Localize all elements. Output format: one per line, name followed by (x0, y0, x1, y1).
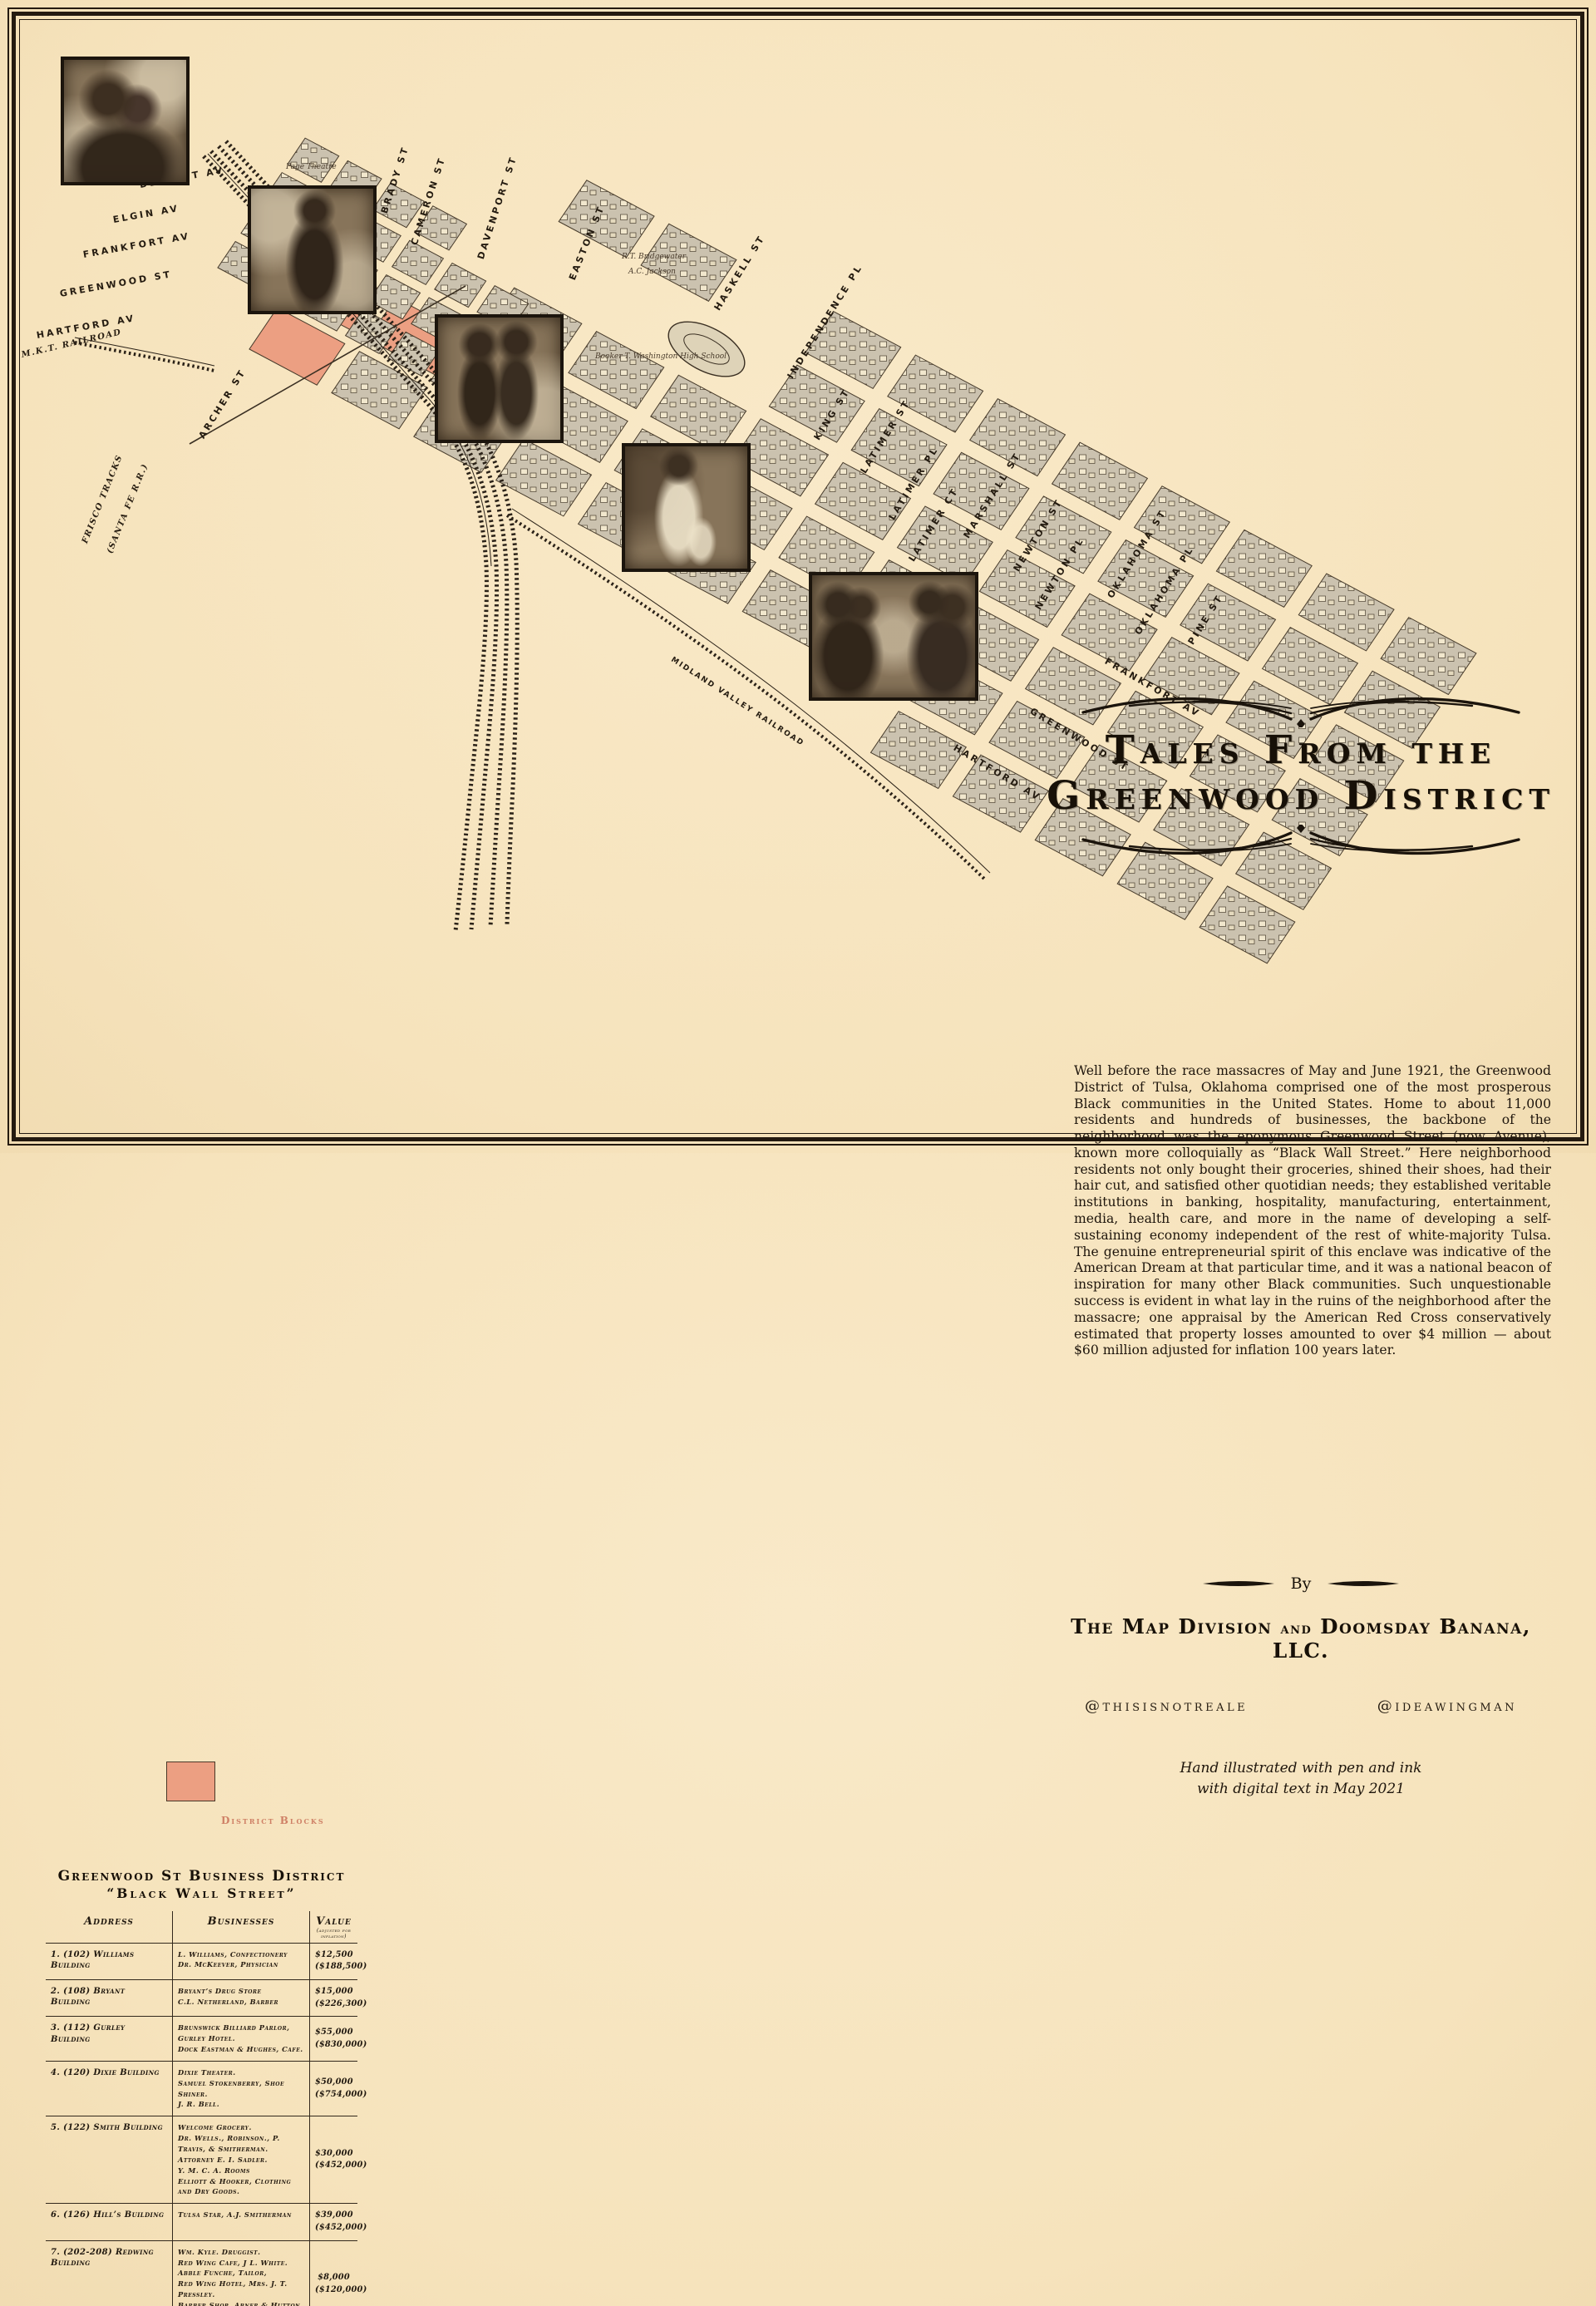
table-row-value: $55,000($830,000) (309, 2016, 357, 2061)
table1-title-line1: Greenwood St Business District (46, 1868, 357, 1885)
handle-thisisnotreale: @thisisnotreale (1085, 1697, 1248, 1715)
business-table-1: Greenwood St Business District “Black Wa… (46, 1868, 357, 2306)
table-row-address: 3. (112) Gurley Building (46, 2016, 172, 2061)
title-block: Tales From the Greenwood District (1039, 691, 1563, 861)
vintage-photo-5 (809, 572, 978, 701)
table-row-address: 7. (202-208) Redwing Building (46, 2240, 172, 2306)
byline-row: By (1039, 1574, 1563, 1593)
table-row-value: $15,000($226,300) (309, 1979, 357, 2016)
byline: The Map Division and Doomsday Banana, LL… (1039, 1614, 1563, 1663)
table-row-address: 2. (108) Bryant Building (46, 1979, 172, 2016)
park-oval (660, 311, 754, 388)
table-row-businesses: Dixie Theater.Samuel Stokenberry, Shoe S… (172, 2061, 309, 2116)
vintage-photo-1 (61, 57, 190, 185)
poster-title-line1: Tales From the (1039, 727, 1563, 773)
by-dash-right-icon (1326, 1579, 1401, 1588)
greenwood-district-map (0, 0, 1596, 1153)
table-row-value: $12,500($188,500) (309, 1943, 357, 1979)
table-row-value: $50,000($754,000) (309, 2061, 357, 2116)
table-row-businesses: Wm. Kyle. Druggist.Red Wing Cafe, J L. W… (172, 2240, 309, 2306)
table-row-businesses: L. Williams, ConfectioneryDr. McKeever, … (172, 1943, 309, 1979)
vintage-photo-2 (248, 185, 377, 314)
place-label-rt-bridgewater: R.T. Bridgewater (622, 253, 686, 261)
note-line2: with digital text in May 2021 (1039, 1779, 1563, 1800)
table-row-value: $30,000($452,000) (309, 2116, 357, 2203)
by-dash-left-icon (1201, 1579, 1276, 1588)
social-handles: @thisisnotreale @ideawingman (1085, 1697, 1517, 1715)
table1-header-address: Address (46, 1911, 172, 1943)
table-row-businesses: Bryant’s Drug StoreC.L. Netherland, Barb… (172, 1979, 309, 2016)
table-row-address: 4. (120) Dixie Building (46, 2061, 172, 2116)
table-row-businesses: Brunswick Billiard Parlor,Gurley Hotel.D… (172, 2016, 309, 2061)
note-line1: Hand illustrated with pen and ink (1039, 1758, 1563, 1779)
table-row-address: 5. (122) Smith Building (46, 2116, 172, 2203)
district-blocks-label: District Blocks (221, 1815, 1596, 1826)
table-row-value: $8,000($120,000) (309, 2240, 357, 2306)
by-label: By (1291, 1574, 1312, 1593)
intro-paragraph: Well before the race massacres of May an… (1074, 1063, 1551, 1359)
table1-title-line2: “Black Wall Street” (46, 1885, 357, 1901)
table-row-businesses: Tulsa Star, A.J. Smitherman (172, 2203, 309, 2239)
byline-and: and (1280, 1620, 1312, 1638)
vintage-photo-4 (622, 443, 751, 572)
table1-header-value-label: Value (316, 1915, 352, 1928)
poster-title-line2: Greenwood District (1039, 773, 1563, 819)
table-row-businesses: Welcome Grocery.Dr. Wells., Robinson., P… (172, 2116, 309, 2203)
place-label-booker-t-washington-high-school: Booker T. Washington High School (595, 352, 727, 361)
flourish-bottom-icon (1068, 825, 1534, 861)
table1-header-businesses: Businesses (172, 1911, 309, 1943)
table-row-value: $39,000($452,000) (309, 2203, 357, 2239)
district-blocks-swatch (166, 1762, 215, 1801)
illustration-note: Hand illustrated with pen and ink with d… (1039, 1758, 1563, 1799)
table1-header-value: Value (adjusted for inflation) (309, 1911, 357, 1943)
vintage-photo-3 (435, 314, 564, 443)
table1-header-value-note: (adjusted for inflation) (312, 1928, 356, 1939)
place-label-page-theatre: Page Theatre (286, 163, 337, 171)
handle-ideawingman: @ideawingman (1377, 1697, 1517, 1715)
flourish-top-icon (1068, 691, 1534, 727)
table-row-address: 1. (102) Williams Building (46, 1943, 172, 1979)
place-label-ac-jackson: A.C. Jackson (628, 268, 676, 276)
table-row-address: 6. (126) Hill’s Building (46, 2203, 172, 2239)
byline-part1: The Map Division (1071, 1614, 1272, 1638)
